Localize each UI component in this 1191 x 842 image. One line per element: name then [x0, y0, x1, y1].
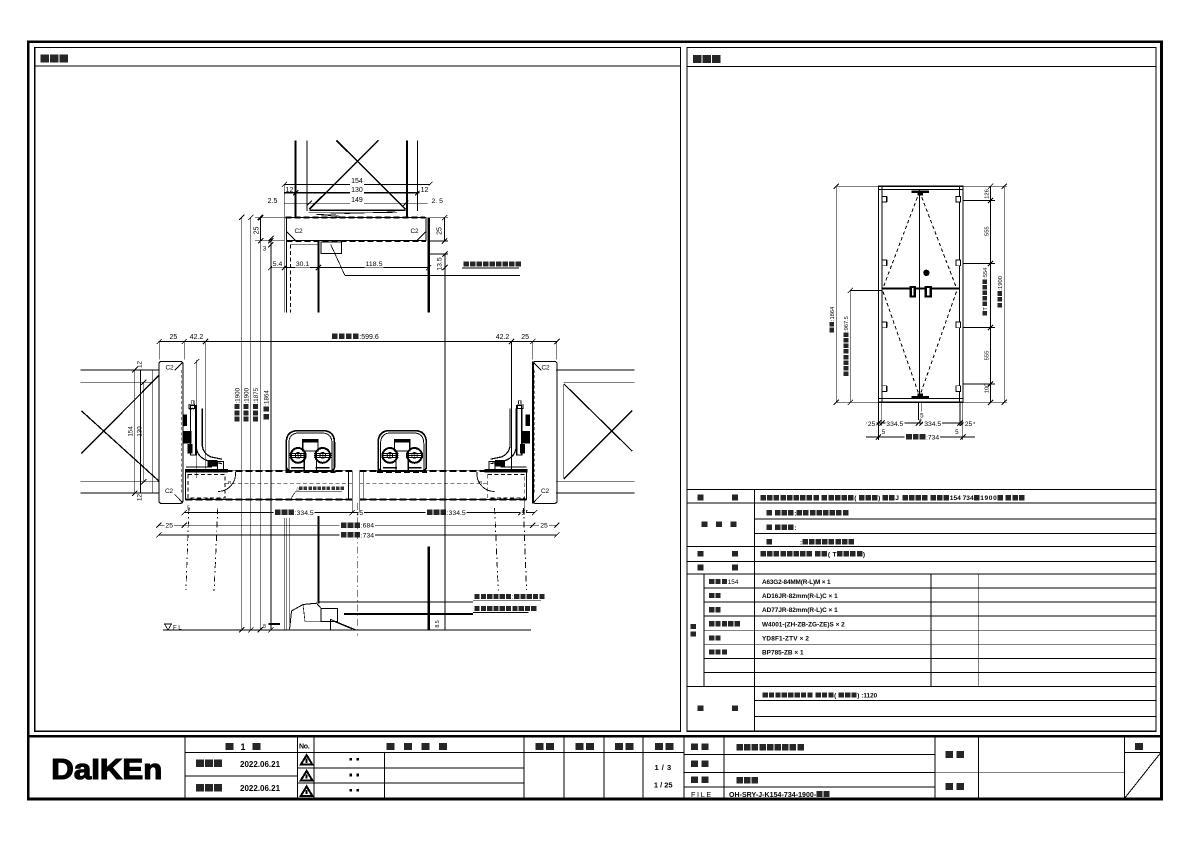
- svg-text:12: 12: [136, 494, 143, 501]
- svg-text:5: 5: [955, 429, 959, 436]
- svg-text:154: 154: [728, 579, 739, 586]
- svg-text:1900: 1900: [980, 495, 997, 502]
- svg-text::1864: :1864: [264, 390, 271, 406]
- svg-text::1900: :1900: [998, 276, 1004, 291]
- svg-text:DaIKEn: DaIKEn: [51, 754, 162, 786]
- svg-text:25: 25: [540, 523, 548, 530]
- svg-text:25: 25: [437, 227, 444, 235]
- svg-text:25: 25: [165, 523, 173, 530]
- svg-text::1900: :1900: [244, 387, 251, 403]
- svg-text:3: 3: [263, 246, 267, 253]
- svg-text:334.5: 334.5: [924, 421, 941, 428]
- svg-text:2.5: 2.5: [268, 198, 278, 205]
- svg-text:C2: C2: [542, 365, 551, 372]
- svg-text:(T: (T: [828, 552, 837, 559]
- svg-text:AD16JR-82mm(R-L)C × 1: AD16JR-82mm(R-L)C × 1: [762, 593, 838, 600]
- svg-text:5: 5: [882, 429, 886, 436]
- svg-text:) :1120: ) :1120: [857, 693, 877, 700]
- svg-text:25: 25: [521, 334, 529, 341]
- svg-text:2022.06.21: 2022.06.21: [240, 784, 281, 793]
- svg-text:C2: C2: [295, 228, 304, 235]
- svg-text:C2: C2: [541, 488, 550, 495]
- svg-text:130: 130: [136, 426, 143, 437]
- svg-text:12: 12: [421, 187, 429, 194]
- svg-text:A63G2-84MM(R-L)M × 1: A63G2-84MM(R-L)M × 1: [762, 579, 831, 586]
- svg-text:25: 25: [253, 227, 260, 235]
- svg-text:555: 555: [984, 226, 990, 236]
- svg-text::554: :554: [983, 268, 989, 279]
- svg-text::684: :684: [361, 523, 374, 530]
- svg-text::1875: :1875: [253, 387, 260, 403]
- svg-text:8: 8: [263, 624, 266, 630]
- svg-text:13.5: 13.5: [437, 257, 444, 270]
- svg-text:30.1: 30.1: [296, 261, 309, 268]
- svg-text::: :: [800, 540, 802, 547]
- svg-text:154 734: 154 734: [950, 495, 974, 502]
- svg-text:154: 154: [127, 426, 134, 437]
- svg-text:555: 555: [984, 351, 990, 361]
- svg-text:5: 5: [359, 510, 363, 517]
- svg-text:334.5: 334.5: [886, 421, 903, 428]
- svg-text:C2: C2: [411, 228, 420, 235]
- svg-text:5: 5: [920, 413, 924, 420]
- svg-text::967.5: :967.5: [844, 316, 850, 332]
- svg-text:): ): [878, 495, 880, 502]
- svg-text:8.5: 8.5: [435, 620, 441, 627]
- svg-text:1: 1: [241, 742, 246, 752]
- svg-text:130: 130: [351, 187, 363, 194]
- svg-text:W4001-(ZH-ZB-ZG-ZE)S × 2: W4001-(ZH-ZB-ZG-ZE)S × 2: [762, 621, 845, 628]
- svg-text:T: T: [983, 307, 989, 311]
- svg-text::734: :734: [361, 533, 374, 540]
- svg-text:118.5: 118.5: [365, 261, 382, 268]
- svg-text:42.2: 42.2: [190, 334, 204, 341]
- svg-text:25: 25: [965, 421, 973, 428]
- svg-text:154: 154: [351, 178, 363, 185]
- svg-text:1 / 3: 1 / 3: [654, 763, 671, 772]
- svg-text:AD77JR-82mm(R-L)C × 1: AD77JR-82mm(R-L)C × 1: [762, 607, 838, 614]
- svg-text:2. 5: 2. 5: [432, 198, 444, 205]
- svg-text:OH-SRY-J-K154-734-1900-: OH-SRY-J-K154-734-1900-: [729, 792, 817, 799]
- svg-text:C2: C2: [166, 365, 175, 372]
- svg-text::599.6: :599.6: [359, 334, 379, 341]
- svg-text:YD8F1-ZTV × 2: YD8F1-ZTV × 2: [762, 635, 809, 642]
- svg-text:2022.06.21: 2022.06.21: [240, 760, 281, 769]
- svg-text:42.2: 42.2: [496, 334, 510, 341]
- svg-text:25: 25: [170, 334, 178, 341]
- svg-text::734: :734: [926, 435, 939, 442]
- svg-text::334.5: :334.5: [447, 510, 466, 517]
- svg-text::1864: :1864: [830, 306, 836, 321]
- svg-text::1900: :1900: [234, 387, 241, 403]
- svg-text:25: 25: [868, 421, 876, 428]
- svg-text:): ): [863, 552, 865, 559]
- svg-text:BP785-ZB × 1: BP785-ZB × 1: [762, 650, 804, 657]
- svg-text::: :: [794, 511, 796, 518]
- svg-text:126: 126: [984, 189, 990, 199]
- svg-text:5: 5: [190, 407, 196, 410]
- svg-text::334.5: :334.5: [295, 510, 314, 517]
- svg-text:1 / 25: 1 / 25: [654, 781, 673, 790]
- svg-text:149: 149: [351, 197, 363, 204]
- svg-text::: :: [794, 525, 796, 532]
- svg-text:12: 12: [136, 361, 143, 368]
- svg-text:C2: C2: [165, 488, 174, 495]
- svg-text::: :: [512, 594, 514, 601]
- svg-text:J: J: [895, 495, 899, 502]
- svg-text:No.: No.: [299, 744, 310, 751]
- svg-text:100: 100: [984, 384, 990, 394]
- svg-text:FILE: FILE: [691, 790, 711, 799]
- svg-text:5.4: 5.4: [273, 261, 283, 268]
